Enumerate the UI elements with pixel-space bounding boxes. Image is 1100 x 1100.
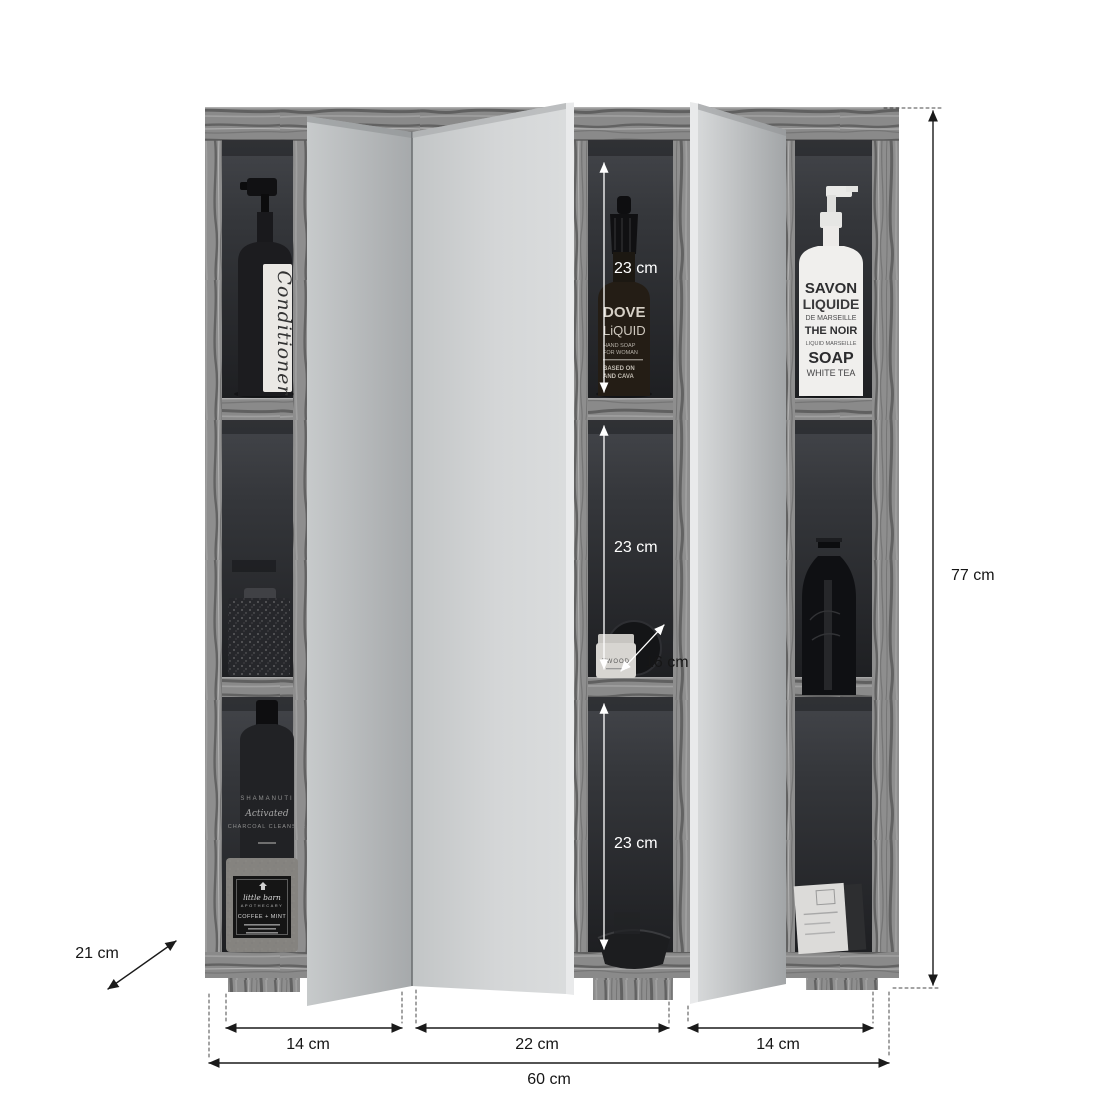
dim-label-total-height: 77 cm	[951, 567, 995, 584]
charcoal-line3: CHARCOAL CLEANSER	[228, 824, 307, 830]
dim-label-left-door: 14 cm	[286, 1036, 330, 1053]
mirror-door-right-panel	[690, 102, 786, 1004]
mirror-door-left-panel-1	[307, 116, 412, 1006]
dim-label-right-door: 14 cm	[756, 1036, 800, 1053]
packaging-box	[794, 882, 867, 955]
mirror-door-left-panel-2	[412, 103, 574, 996]
dim-center-door-width: 22 cm	[416, 1028, 669, 1053]
small-jar-label: TWOOD	[602, 659, 630, 665]
diagram-canvas: Conditioner SHAMANUTI Activated CHARCOAL…	[0, 0, 1100, 1100]
dim-label-total-width: 60 cm	[527, 1071, 571, 1088]
conditioner-label: Conditioner	[273, 270, 295, 396]
savon-line3: DE MARSEILLE	[806, 315, 857, 322]
dim-right-door-width: 14 cm	[688, 1028, 873, 1053]
mirror-edge-right-door	[690, 102, 698, 1004]
savon-line7: WHITE TEA	[807, 368, 856, 378]
body-scrub-jar: little barn APOTHECARY COFFEE + MINT	[226, 858, 298, 952]
dove-line4: FOR WOMAN	[603, 350, 638, 356]
dim-label-cabinet-depth: 21 cm	[75, 945, 119, 962]
scrub-line2: APOTHECARY	[241, 903, 284, 908]
savon-line2: LIQUIDE	[803, 296, 860, 312]
dim-label-shelf-depth: 16 cm	[645, 654, 689, 671]
dove-line3: HAND SOAP	[603, 343, 636, 349]
dim-label-top-shelf: 23 cm	[614, 260, 658, 277]
dim-label-center-door: 22 cm	[515, 1036, 559, 1053]
dove-type: LiQUID	[603, 323, 646, 338]
dove-line6: AND CAVA	[603, 374, 634, 380]
dove-name: DOVE	[603, 304, 646, 321]
savon-line6: SOAP	[808, 350, 854, 367]
dim-total-height: 77 cm	[884, 108, 995, 988]
dove-line5: BASED ON	[603, 366, 635, 372]
savon-line5: LIQUID MARSEILLE	[806, 341, 857, 347]
mirror-edge-left-door	[566, 103, 574, 996]
dim-left-door-width: 14 cm	[226, 1028, 402, 1053]
scrub-line3: COFFEE + MINT	[238, 914, 287, 920]
savon-line1: SAVON	[805, 280, 857, 297]
dim-label-bottom-shelf: 23 cm	[614, 835, 658, 852]
dim-cabinet-depth: 21 cm	[75, 941, 176, 989]
scrub-line1: little barn	[243, 893, 281, 902]
cabinet-render: Conditioner SHAMANUTI Activated CHARCOAL…	[205, 102, 899, 1006]
savon-line4: THE NOIR	[805, 325, 858, 337]
product-dimension-diagram: Conditioner SHAMANUTI Activated CHARCOAL…	[0, 0, 1100, 1100]
mirror-doors	[307, 102, 786, 1006]
dim-total-width: 60 cm	[209, 1063, 889, 1088]
dim-label-middle-shelf: 23 cm	[614, 539, 658, 556]
charcoal-line1: SHAMANUTI	[240, 796, 293, 802]
charcoal-line2: Activated	[244, 809, 288, 819]
